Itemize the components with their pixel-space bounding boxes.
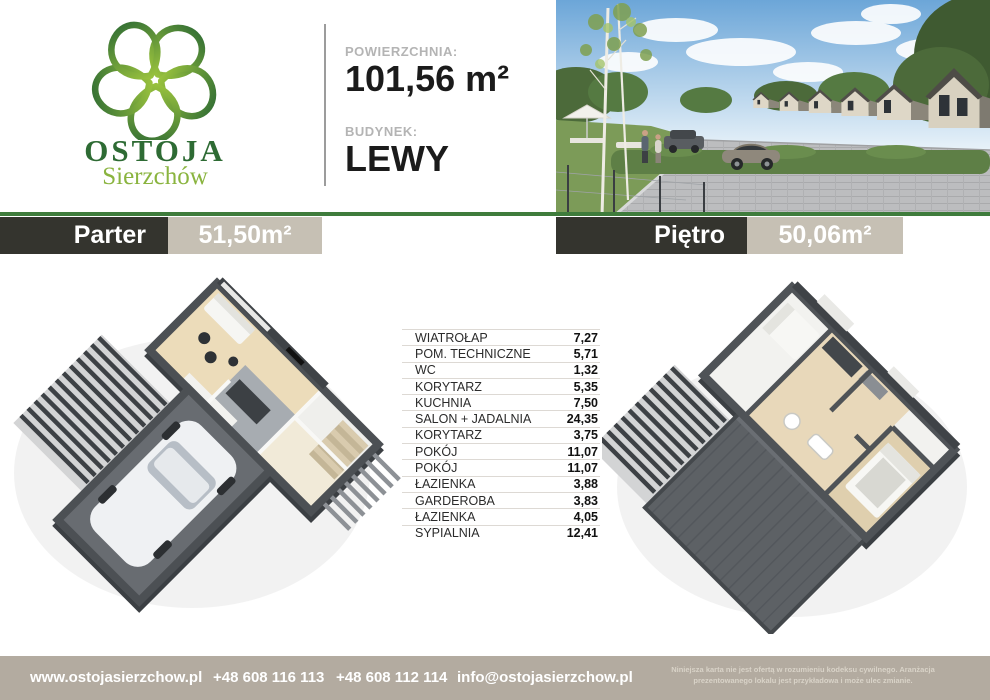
table-row: POKÓJ 11,07 (402, 443, 600, 459)
room-name: KORYTARZ (402, 428, 482, 442)
footer-disclaimer: Niniejsza karta nie jest ofertą w rozumi… (638, 664, 968, 686)
room-name: KUCHNIA (402, 396, 471, 410)
table-row: KORYTARZ 5,35 (402, 378, 600, 394)
room-area: 3,83 (574, 494, 600, 508)
table-row: WIATROŁAP 7,27 (402, 329, 600, 345)
room-area: 5,71 (574, 347, 600, 361)
upper-floor-plan (602, 262, 988, 634)
room-name: ŁAZIENKA (402, 477, 475, 491)
table-row: POKÓJ 11,07 (402, 459, 600, 475)
room-area: 24,35 (567, 412, 600, 426)
room-area: 12,41 (567, 526, 600, 540)
footer-phone1: +48 608 116 113 (213, 656, 324, 700)
table-row: KORYTARZ 3,75 (402, 427, 600, 443)
building-label: BUDYNEK: (345, 124, 418, 139)
room-name: POKÓJ (402, 461, 457, 475)
logo-subname: Sierzchów (0, 163, 310, 191)
banner-pietro-area-value: 50,06m² (778, 221, 871, 250)
room-name: WIATROŁAP (402, 331, 488, 345)
room-name: GARDEROBA (402, 494, 495, 508)
banner-parter-label: Parter (74, 221, 146, 250)
room-name: KORYTARZ (402, 380, 482, 394)
table-row: POM. TECHNICZNE 5,71 (402, 345, 600, 361)
room-area: 7,27 (574, 331, 600, 345)
banner-pietro-area: 50,06m² (747, 217, 903, 254)
logo: OSTOJA Sierzchów (0, 0, 324, 212)
footer: www.ostojasierzchow.pl +48 608 116 113 +… (0, 656, 990, 700)
table-row: GARDEROBA 3,83 (402, 492, 600, 508)
table-row: ŁAZIENKA 3,88 (402, 476, 600, 492)
property-card: OSTOJA Sierzchów POWIERZCHNIA: 101,56 m²… (0, 0, 990, 700)
room-name: POKÓJ (402, 445, 457, 459)
table-row: KUCHNIA 7,50 (402, 394, 600, 410)
table-row: SYPIALNIA 12,41 (402, 525, 600, 541)
footer-phone2: +48 608 112 114 (336, 656, 447, 700)
vertical-divider (324, 24, 326, 186)
room-name: SALON + JADALNIA (402, 412, 531, 426)
footer-website-link[interactable]: www.ostojasierzchow.pl (30, 656, 202, 700)
disclaimer-line2: prezentowanego lokalu jest przykładowa i… (638, 675, 968, 686)
room-area: 4,05 (574, 510, 600, 524)
room-area: 1,32 (574, 363, 600, 377)
table-row: SALON + JADALNIA 24,35 (402, 410, 600, 426)
banner-parter-area: 51,50m² (168, 217, 322, 254)
ground-floor-plan (12, 258, 404, 626)
building-value: LEWY (345, 138, 449, 180)
area-label: POWIERZCHNIA: (345, 44, 458, 59)
room-table: WIATROŁAP 7,27 POM. TECHNICZNE 5,71 WC 1… (402, 329, 600, 541)
accent-line (0, 212, 990, 216)
room-table-body: WIATROŁAP 7,27 POM. TECHNICZNE 5,71 WC 1… (402, 329, 600, 541)
room-area: 3,75 (574, 428, 600, 442)
footer-email-link[interactable]: info@ostojasierzchow.pl (457, 656, 633, 700)
info-block: POWIERZCHNIA: 101,56 m² BUDYNEK: LEWY (345, 0, 555, 212)
banner-parter-area-value: 51,50m² (198, 221, 291, 250)
room-name: POM. TECHNICZNE (402, 347, 531, 361)
disclaimer-line1: Niniejsza karta nie jest ofertą w rozumi… (638, 664, 968, 675)
room-area: 7,50 (574, 396, 600, 410)
room-name: WC (402, 363, 436, 377)
area-value: 101,56 m² (345, 58, 509, 100)
room-area: 5,35 (574, 380, 600, 394)
room-area: 3,88 (574, 477, 600, 491)
banner-parter: Parter (0, 217, 168, 254)
banner-pietro: Piętro (556, 217, 747, 254)
room-area: 11,07 (567, 445, 600, 459)
banner-pietro-label: Piętro (654, 221, 725, 250)
table-row: WC 1,32 (402, 362, 600, 378)
flower-logo-icon (85, 20, 225, 140)
room-name: ŁAZIENKA (402, 510, 475, 524)
room-name: SYPIALNIA (402, 526, 480, 540)
estate-photo (556, 0, 990, 216)
table-row: ŁAZIENKA 4,05 (402, 508, 600, 524)
room-area: 11,07 (567, 461, 600, 475)
